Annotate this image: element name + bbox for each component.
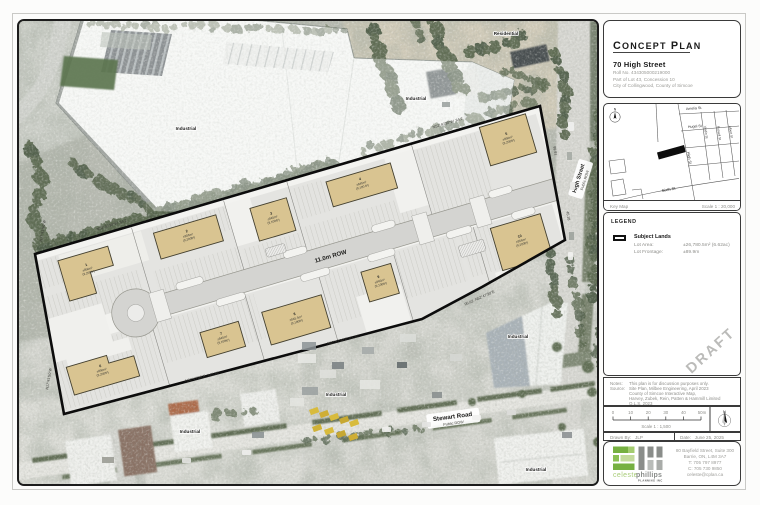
svg-text:phillips: phillips xyxy=(636,472,662,479)
svg-text:Industrial: Industrial xyxy=(508,334,529,339)
svg-text:Industrial: Industrial xyxy=(176,126,197,131)
svg-text:Barrie, ON, L4M 3A7: Barrie, ON, L4M 3A7 xyxy=(684,454,727,459)
svg-text:Industrial: Industrial xyxy=(180,429,201,434)
svg-text:Industrial: Industrial xyxy=(406,96,427,101)
svg-text:40: 40 xyxy=(681,410,686,415)
svg-text:Hugel St: Hugel St xyxy=(688,124,702,129)
svg-text:PLANNING INC: PLANNING INC xyxy=(638,479,663,483)
svg-text:Vindin St: Vindin St xyxy=(703,126,709,139)
svg-text:Residential: Residential xyxy=(494,31,519,36)
svg-text:20: 20 xyxy=(646,410,651,415)
svg-text:80 Bayfield Street, Suite 300: 80 Bayfield Street, Suite 300 xyxy=(676,448,735,453)
svg-text:10: 10 xyxy=(628,410,633,415)
svg-text:Sixth St: Sixth St xyxy=(661,186,676,193)
svg-text:C: 705 730 9850: C: 705 730 9850 xyxy=(688,466,722,471)
svg-text:Scale 1 : 1,500: Scale 1 : 1,500 xyxy=(641,424,671,429)
svg-text:0: 0 xyxy=(612,410,615,415)
svg-text:celeste@cplan.ca: celeste@cplan.ca xyxy=(687,472,724,477)
svg-text:Amelia St.: Amelia St. xyxy=(686,106,703,111)
svg-text:Industrial: Industrial xyxy=(526,467,547,472)
svg-text:30: 30 xyxy=(663,410,668,415)
svg-text:50m: 50m xyxy=(698,410,707,415)
svg-text:Albert St: Albert St xyxy=(728,126,734,139)
svg-text:High St: High St xyxy=(686,151,692,165)
svg-text:T: 705 797 8977: T: 705 797 8977 xyxy=(689,460,722,465)
svg-text:N: N xyxy=(614,108,617,112)
svg-text:Industrial: Industrial xyxy=(326,392,347,397)
svg-text:celeste: celeste xyxy=(613,472,638,479)
